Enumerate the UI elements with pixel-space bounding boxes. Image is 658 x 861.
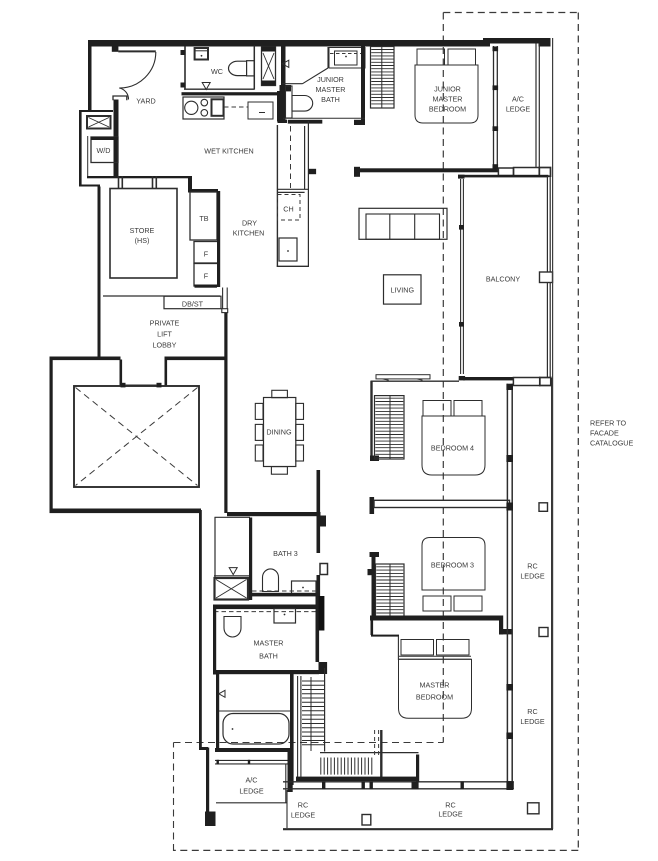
svg-text:F: F bbox=[204, 250, 209, 259]
svg-text:W/D: W/D bbox=[97, 146, 111, 155]
svg-text:LEDGE: LEDGE bbox=[239, 787, 264, 796]
svg-text:BATH: BATH bbox=[259, 652, 278, 661]
svg-text:BEDROOM 3: BEDROOM 3 bbox=[431, 561, 474, 570]
svg-text:TB: TB bbox=[199, 214, 208, 223]
svg-text:BATH 3: BATH 3 bbox=[273, 549, 298, 558]
svg-text:BEDROOM: BEDROOM bbox=[416, 693, 453, 702]
svg-text:DRY: DRY bbox=[242, 219, 257, 228]
svg-text:BEDROOM: BEDROOM bbox=[429, 105, 466, 114]
svg-text:LIVING: LIVING bbox=[391, 286, 415, 295]
svg-text:LIFT: LIFT bbox=[157, 330, 172, 339]
svg-text:DB/ST: DB/ST bbox=[182, 299, 204, 308]
svg-text:MASTER: MASTER bbox=[420, 681, 450, 690]
svg-text:RC: RC bbox=[527, 707, 537, 716]
svg-text:A/C: A/C bbox=[512, 95, 524, 104]
svg-text:(HS): (HS) bbox=[135, 236, 150, 245]
svg-text:WET KITCHEN: WET KITCHEN bbox=[204, 147, 253, 156]
svg-text:CH: CH bbox=[283, 205, 293, 214]
svg-text:LEDGE: LEDGE bbox=[438, 810, 463, 819]
svg-text:WC: WC bbox=[211, 67, 223, 76]
svg-text:FACADE: FACADE bbox=[590, 429, 619, 438]
svg-text:MASTER: MASTER bbox=[316, 85, 346, 94]
svg-text:RC: RC bbox=[445, 801, 455, 810]
svg-text:LEDGE: LEDGE bbox=[291, 811, 316, 820]
svg-text:STORE: STORE bbox=[130, 226, 155, 235]
svg-text:DINING: DINING bbox=[266, 428, 292, 437]
svg-text:KITCHEN: KITCHEN bbox=[233, 229, 265, 238]
svg-text:BEDROOM 4: BEDROOM 4 bbox=[431, 444, 474, 453]
svg-text:LEDGE: LEDGE bbox=[520, 717, 545, 726]
svg-text:LEDGE: LEDGE bbox=[506, 105, 531, 114]
svg-text:JUNIOR: JUNIOR bbox=[317, 75, 344, 84]
svg-text:LEDGE: LEDGE bbox=[520, 572, 545, 581]
svg-text:CATALOGUE: CATALOGUE bbox=[590, 439, 633, 448]
svg-text:YARD: YARD bbox=[136, 97, 155, 106]
svg-text:MASTER: MASTER bbox=[254, 639, 284, 648]
svg-text:REFER TO: REFER TO bbox=[590, 419, 626, 428]
svg-text:MASTER: MASTER bbox=[433, 95, 463, 104]
svg-text:BATH: BATH bbox=[321, 95, 340, 104]
svg-text:RC: RC bbox=[298, 801, 308, 810]
svg-text:LOBBY: LOBBY bbox=[153, 341, 177, 350]
svg-text:RC: RC bbox=[527, 562, 537, 571]
svg-text:BALCONY: BALCONY bbox=[486, 275, 521, 284]
svg-text:PRIVATE: PRIVATE bbox=[150, 319, 180, 328]
svg-text:F: F bbox=[204, 272, 209, 281]
svg-text:JUNIOR: JUNIOR bbox=[434, 85, 461, 94]
svg-text:A/C: A/C bbox=[246, 776, 258, 785]
